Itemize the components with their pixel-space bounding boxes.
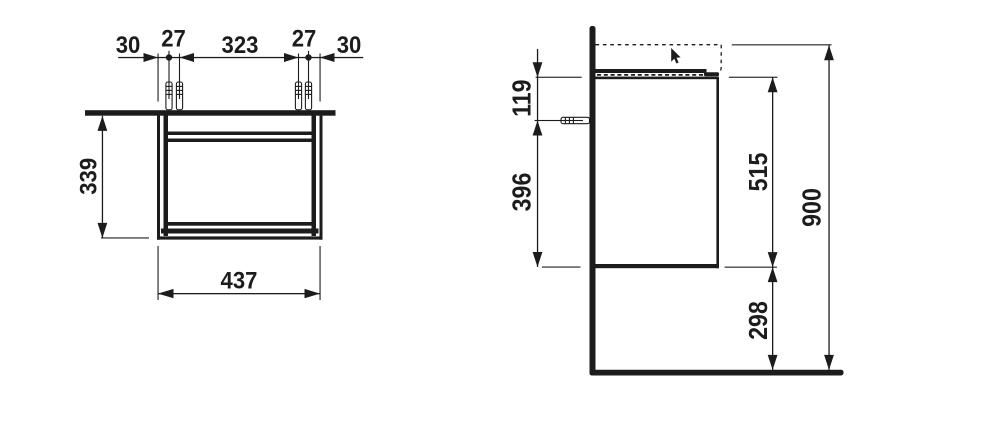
svg-text:515: 515	[745, 153, 773, 192]
svg-text:437: 437	[221, 267, 258, 294]
svg-text:30: 30	[337, 31, 362, 58]
svg-text:339: 339	[75, 158, 102, 195]
svg-text:298: 298	[745, 301, 773, 340]
svg-text:30: 30	[116, 31, 141, 58]
svg-text:119: 119	[508, 79, 536, 116]
svg-text:27: 27	[161, 25, 186, 52]
svg-text:396: 396	[508, 173, 536, 212]
svg-text:27: 27	[292, 25, 317, 52]
svg-text:323: 323	[222, 31, 259, 58]
svg-text:900: 900	[799, 188, 827, 227]
